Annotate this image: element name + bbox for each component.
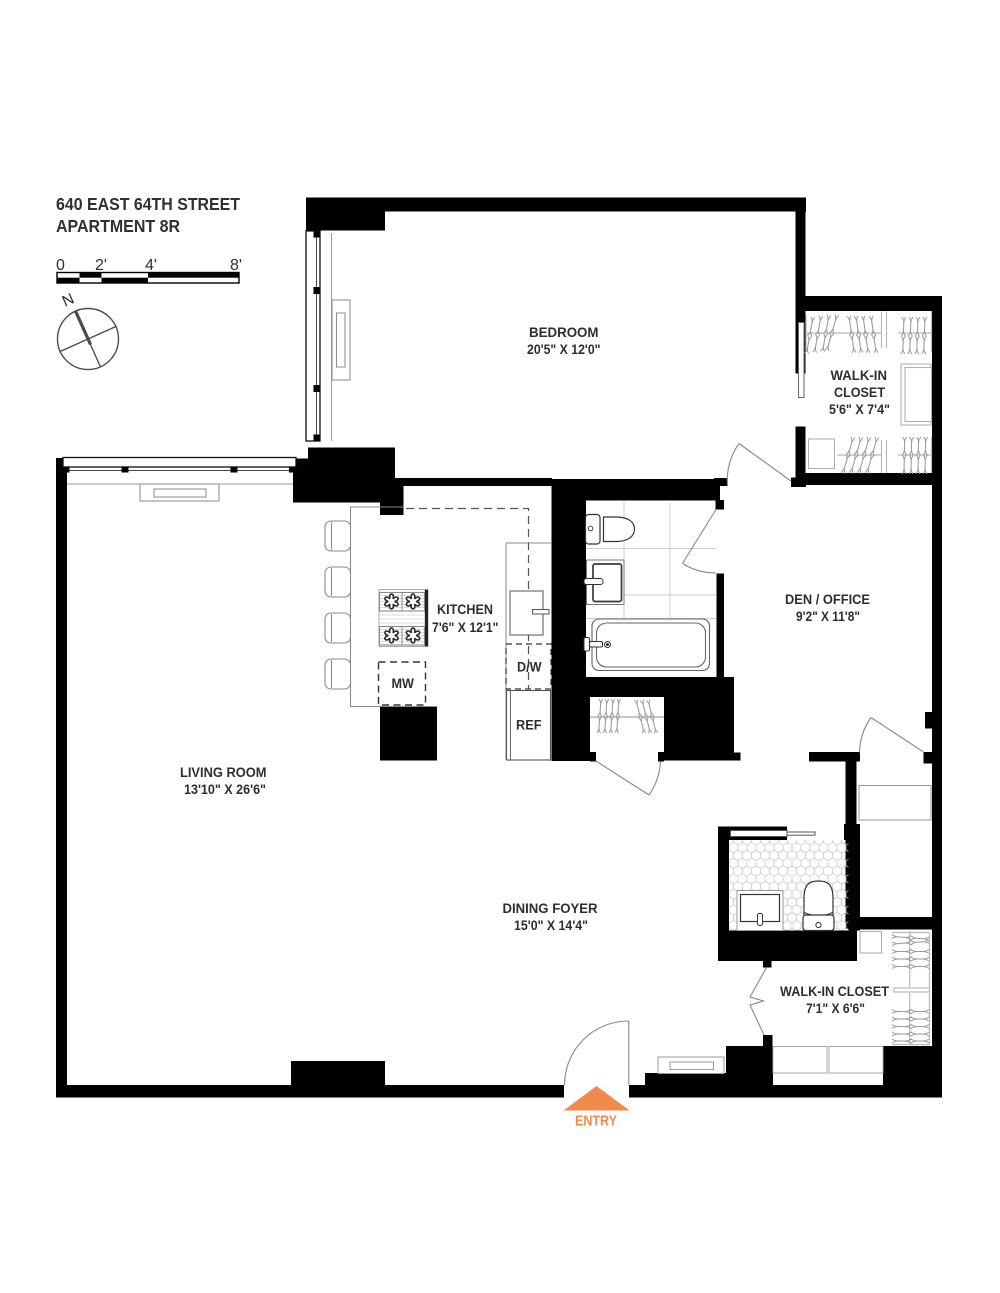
svg-text:WALK-IN CLOSET: WALK-IN CLOSET xyxy=(780,984,890,999)
svg-text:BEDROOM: BEDROOM xyxy=(529,325,599,340)
svg-text:8': 8' xyxy=(230,257,242,274)
svg-text:ENTRY: ENTRY xyxy=(575,1113,617,1130)
svg-text:7'6" X 12'1": 7'6" X 12'1" xyxy=(432,620,499,635)
svg-text:WALK-IN: WALK-IN xyxy=(831,368,888,383)
svg-text:15'0" X 14'4": 15'0" X 14'4" xyxy=(514,918,588,933)
svg-text:0: 0 xyxy=(56,257,65,274)
svg-text:9'2" X 11'8": 9'2" X 11'8" xyxy=(796,609,860,624)
svg-text:KITCHEN: KITCHEN xyxy=(437,602,493,617)
svg-text:2': 2' xyxy=(95,257,107,274)
svg-text:4': 4' xyxy=(145,257,157,274)
svg-text:DINING FOYER: DINING FOYER xyxy=(503,901,598,916)
svg-text:REF: REF xyxy=(516,718,542,733)
svg-text:13'10" X 26'6": 13'10" X 26'6" xyxy=(184,782,266,797)
svg-text:D/W: D/W xyxy=(517,660,542,675)
svg-text:APARTMENT 8R: APARTMENT 8R xyxy=(56,216,180,236)
svg-text:DEN / OFFICE: DEN / OFFICE xyxy=(785,592,870,607)
svg-text:640 EAST 64TH STREET: 640 EAST 64TH STREET xyxy=(56,194,240,214)
svg-text:CLOSET: CLOSET xyxy=(834,385,886,400)
svg-text:LIVING ROOM: LIVING ROOM xyxy=(180,765,267,780)
svg-text:5'6" X 7'4": 5'6" X 7'4" xyxy=(829,402,890,417)
svg-text:20'5" X 12'0": 20'5" X 12'0" xyxy=(527,342,601,357)
svg-text:7'1" X 6'6": 7'1" X 6'6" xyxy=(806,1001,865,1016)
svg-text:MW: MW xyxy=(392,676,415,691)
